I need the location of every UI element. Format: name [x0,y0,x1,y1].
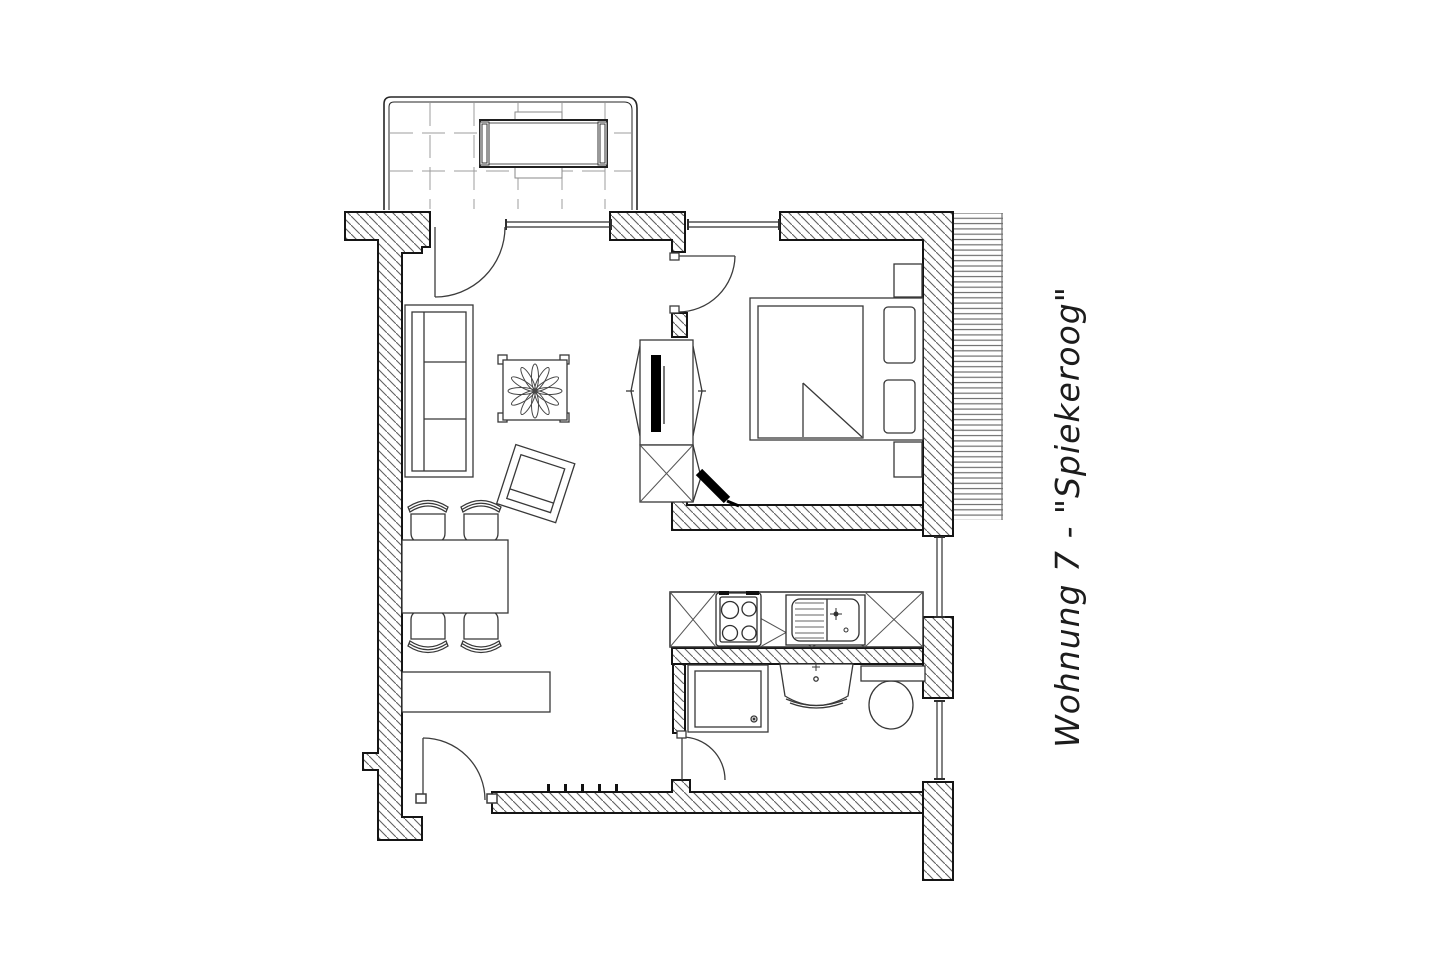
dining-chair [408,611,448,653]
wall-bottom-right-pillar [923,782,953,880]
bed-frame [750,298,923,440]
kitchen-sink [786,595,865,645]
balcony-table [480,120,607,167]
entry-door [416,738,497,803]
sofa [405,305,473,477]
kitchen [670,591,923,647]
wall-kitchen-divider [672,648,923,664]
bathroom-door [677,731,725,780]
tv-cabinet [640,340,693,445]
floor-plan-page: Wohnung 7 - "Spiekeroog" [0,0,1440,960]
bathroom [688,663,925,732]
dining-chair [461,501,501,543]
speaker [699,472,727,500]
stove [716,591,761,646]
balcony-door [435,227,505,297]
shower [688,665,768,732]
window-bedroom-top [688,219,779,230]
tv-screen [651,355,661,432]
deck-lines [953,213,1003,520]
wall-tv-stub [672,313,687,337]
window-bath-right [934,701,945,779]
nightstand [894,264,922,297]
living-room [405,305,575,523]
toilet [861,666,925,729]
dining-chair [408,501,448,543]
bedroom-door [670,253,735,313]
floor-plan-drawing [0,0,1440,960]
nightstand [894,442,922,477]
wall-bottom [492,780,923,813]
wall-right-mid [923,617,953,698]
balcony [384,97,637,210]
wall-bedroom-bottom [672,500,923,530]
dining-area [402,501,550,713]
wall-bath-left [673,664,685,733]
coffee-table [498,355,569,422]
window-balcony [506,219,611,230]
dining-chair [461,611,501,653]
wall-top-mid [610,212,685,252]
washbasin [780,663,853,708]
armchair [497,445,575,523]
plan-title: Wohnung 7 - "Spiekeroog" [1044,217,1092,817]
window-kitchen-right [934,537,945,617]
dining-table [402,540,508,613]
bedroom [750,264,923,477]
sideboard [402,672,550,712]
tv-unit [626,340,739,506]
